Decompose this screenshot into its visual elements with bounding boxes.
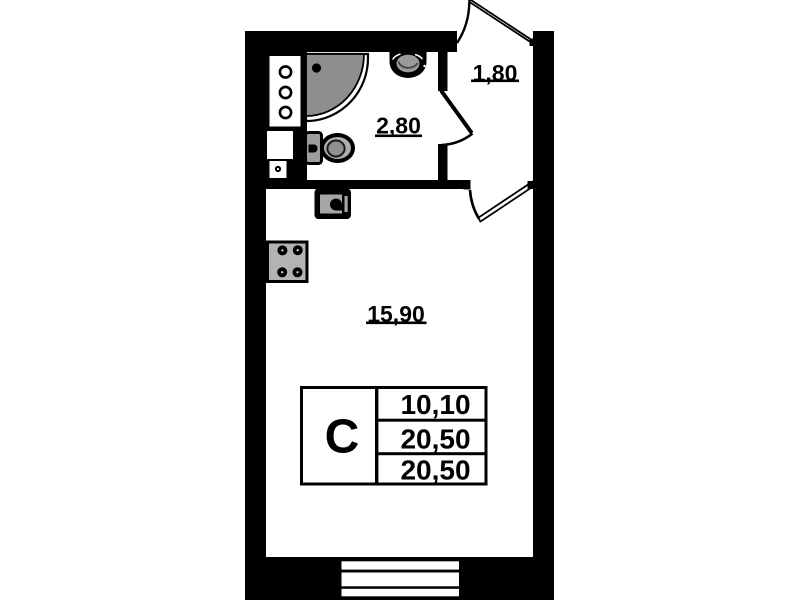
svg-text:20,50: 20,50 bbox=[400, 424, 470, 455]
svg-text:С: С bbox=[325, 411, 360, 464]
svg-text:20,50: 20,50 bbox=[400, 455, 470, 486]
svg-text:10,10: 10,10 bbox=[400, 389, 470, 420]
